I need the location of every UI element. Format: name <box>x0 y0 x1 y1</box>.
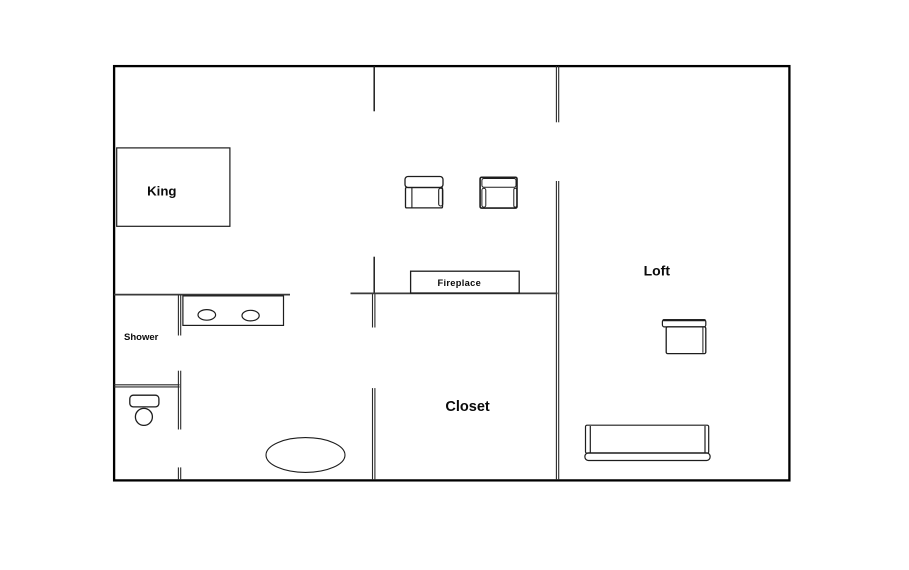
svg-text:Closet: Closet <box>445 399 489 415</box>
svg-text:Fireplace: Fireplace <box>438 278 482 288</box>
svg-text:Shower: Shower <box>124 332 159 343</box>
svg-text:King: King <box>147 183 176 198</box>
svg-text:Loft: Loft <box>644 263 671 279</box>
